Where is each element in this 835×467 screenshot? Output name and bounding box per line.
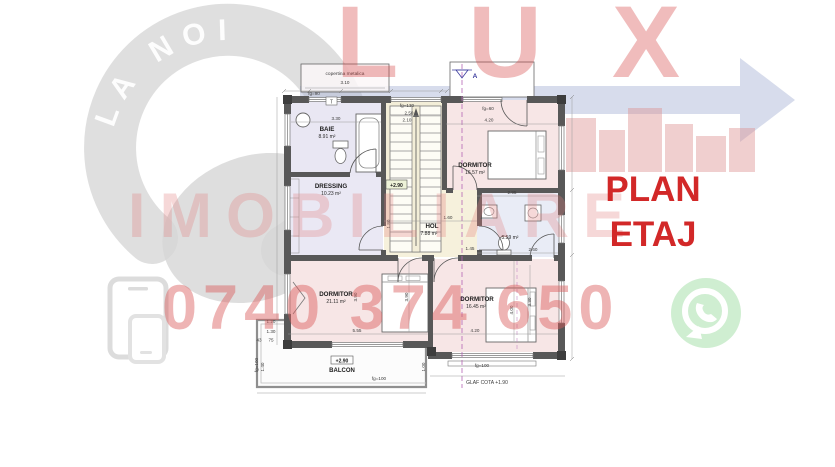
dim-label: 1.00 xyxy=(421,362,426,371)
bed-icon-bottom-left xyxy=(382,274,428,332)
washer-icon xyxy=(525,205,541,221)
dim-label: 3.90 xyxy=(353,292,358,301)
dim-label: 3.30 xyxy=(527,297,532,306)
dim-label: 1.45 xyxy=(466,246,475,251)
room-label-dormitor-3: DORMITOR xyxy=(460,296,494,303)
bed-icon-top-right xyxy=(488,131,546,179)
dim-label: 2.95 xyxy=(508,190,517,195)
dim-label: 2.10 xyxy=(403,118,412,123)
room-area-dormitor-3: 16.45 m² xyxy=(466,304,486,310)
dim-label: 4.20 xyxy=(485,118,494,123)
dim-label: 2.50 xyxy=(405,111,414,116)
dim-label: 3.90 xyxy=(404,292,409,301)
sill-note-label: GLAF COTA +1.90 xyxy=(466,380,508,386)
dim-label: 2.60 xyxy=(529,247,538,252)
room-area-dormitor-1: 16.57 m² xyxy=(465,170,485,176)
dim-label: fg=60 xyxy=(482,106,494,111)
bath2-sink-icon xyxy=(481,205,497,218)
room-area-bath2: 5.59 m² xyxy=(502,235,519,241)
room-area-dormitor-2: 21.11 m² xyxy=(326,299,346,305)
dim-label: 1.20 xyxy=(267,319,276,324)
dim-label: 1.40 xyxy=(260,362,265,371)
dim-label: fg=100 xyxy=(254,357,259,372)
stair-level-label: +2.90 xyxy=(390,183,403,189)
section-mark-label: A xyxy=(473,73,478,80)
bathtub-icon xyxy=(356,114,382,172)
room-label-dormitor-2: DORMITOR xyxy=(319,291,353,298)
dim-label: 1.30 xyxy=(267,329,276,334)
dim-label: 4.20 xyxy=(471,328,480,333)
sink-icon xyxy=(296,113,310,127)
section-box xyxy=(450,62,534,97)
dim-label: fg=100 xyxy=(475,363,490,368)
dim-label: 5.55 xyxy=(353,328,362,333)
floor-plan: BAIE 8.91 m² DRESSING 10.23 m² DORMITOR … xyxy=(0,0,835,467)
canopy-dim: 3.10 xyxy=(341,80,350,85)
canopy-label: copertina metalica xyxy=(326,71,365,77)
room-area-baie: 8.91 m² xyxy=(319,134,336,140)
room-label-baie: BAIE xyxy=(320,126,335,133)
balcony-level-label: +2.90 xyxy=(336,359,349,365)
room-area-hol: 7.88 m² xyxy=(421,231,438,237)
dim-label: 1.80 xyxy=(386,219,391,228)
room-area-dressing: 10.23 m² xyxy=(321,191,341,197)
real-estate-floorplan-image: CHEIA E LA NOI xyxy=(0,0,835,467)
dim-label: 75 xyxy=(268,338,274,343)
dim-label: fg=100 xyxy=(372,376,387,381)
room-label-balcon: BALCON xyxy=(329,368,355,374)
thermostat-label: T xyxy=(330,100,333,106)
dim-label: 3.30 xyxy=(332,116,341,121)
room-label-hol: HOL xyxy=(425,223,438,230)
room-label-dormitor-1: DORMITOR xyxy=(458,162,492,169)
room-label-dressing: DRESSING xyxy=(315,183,348,190)
dim-label: 43 xyxy=(256,338,262,343)
dim-label: 1.60 xyxy=(444,215,453,220)
canopy-outline xyxy=(301,64,389,92)
dim-label: fg=90 xyxy=(308,91,320,96)
dim-label: 4.00 xyxy=(509,305,514,314)
dim-label: fg=130 xyxy=(400,103,415,108)
